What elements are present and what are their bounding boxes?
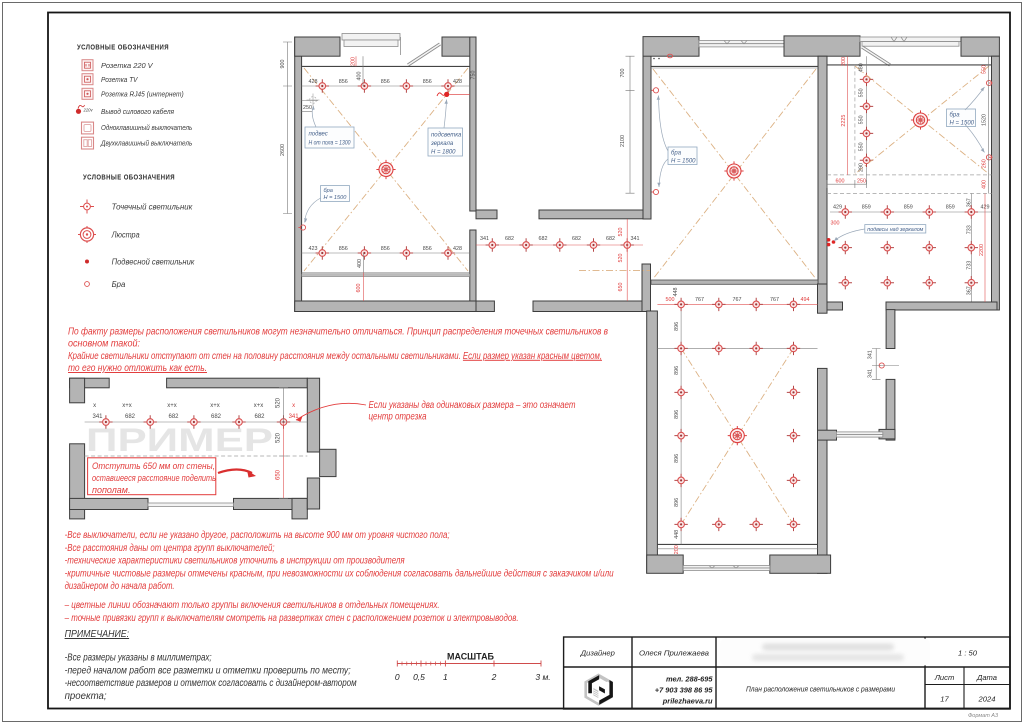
svg-text:856: 856	[339, 79, 348, 85]
svg-text:Подвесной светильник: Подвесной светильник	[112, 258, 195, 267]
svg-text:682: 682	[211, 414, 222, 420]
svg-text:896: 896	[674, 454, 680, 463]
svg-text:682: 682	[539, 236, 548, 242]
svg-text:650: 650	[276, 469, 282, 480]
svg-text:подвес: подвес	[309, 132, 328, 138]
svg-text:0: 0	[395, 672, 400, 682]
svg-text:Дата: Дата	[976, 673, 997, 682]
svg-text:дизайнером до начала работ.: дизайнером до начала работ.	[65, 581, 175, 592]
svg-text:3 м.: 3 м.	[535, 672, 550, 682]
svg-text:х+х: х+х	[167, 403, 177, 409]
svg-text:341: 341	[868, 369, 874, 378]
svg-text:367: 367	[967, 198, 973, 207]
svg-text:260: 260	[982, 159, 988, 168]
svg-text:859: 859	[904, 205, 913, 211]
svg-text:Если указаны два одинаковых ра: Если указаны два одинаковых размера – эт…	[369, 400, 576, 411]
svg-text:520: 520	[276, 397, 282, 408]
svg-text:Отступить 650 мм от стены,: Отступить 650 мм от стены,	[92, 461, 215, 471]
svg-text:733: 733	[967, 261, 973, 270]
svg-text:2200: 2200	[979, 244, 985, 256]
svg-text:429: 429	[833, 205, 842, 211]
svg-text:проекта;: проекта;	[65, 691, 107, 702]
svg-text:448: 448	[674, 530, 680, 539]
svg-text:Лист: Лист	[934, 673, 955, 682]
svg-text:682: 682	[125, 414, 136, 420]
svg-text:– точные привязки групп к выкл: – точные привязки групп к выключателям с…	[64, 613, 519, 624]
svg-text:Н = 1500: Н = 1500	[671, 159, 696, 165]
svg-text:Н = 1500: Н = 1500	[324, 195, 348, 201]
svg-text:290: 290	[859, 163, 865, 172]
svg-text:х: х	[292, 403, 295, 409]
svg-text:Розетка TV: Розетка TV	[101, 75, 139, 84]
svg-text:-технические характеристики св: -технические характеристики светильников…	[65, 556, 406, 567]
svg-text:2024: 2024	[978, 695, 996, 704]
svg-text:План расположения светильников: План расположения светильников с размера…	[746, 687, 895, 694]
svg-text:ПРИМЕР: ПРИМЕР	[86, 422, 273, 458]
svg-text:подвесы над зеркалом: подвесы над зеркалом	[867, 227, 923, 233]
svg-text:1: 1	[443, 672, 448, 682]
svg-text:856: 856	[381, 246, 390, 252]
svg-text:428: 428	[309, 79, 318, 85]
svg-text:-перед началом работ все разме: -перед началом работ все разметки и отме…	[65, 665, 351, 676]
svg-text:500: 500	[666, 297, 675, 303]
svg-text:-несоответствие размеров и отм: -несоответствие размеров и отметок согла…	[65, 678, 357, 689]
svg-text:896: 896	[674, 498, 680, 507]
svg-text:-Все расстояния даны от центра: -Все расстояния даны от центра групп вык…	[65, 543, 275, 554]
svg-text:220v: 220v	[83, 108, 94, 113]
svg-text:Розетка 220 V: Розетка 220 V	[101, 61, 154, 70]
svg-text:х+х: х+х	[210, 403, 220, 409]
svg-text:300: 300	[831, 221, 840, 227]
svg-text:859: 859	[862, 205, 871, 211]
svg-text:250: 250	[857, 178, 866, 184]
svg-text:900: 900	[280, 60, 286, 69]
svg-text:х+х: х+х	[122, 403, 132, 409]
svg-text:896: 896	[674, 410, 680, 419]
svg-text:856: 856	[381, 79, 390, 85]
svg-text:тел. 288-695: тел. 288-695	[666, 675, 713, 684]
svg-text:600: 600	[836, 178, 845, 184]
svg-text:896: 896	[674, 366, 680, 375]
svg-text:prilezhaeva.ru: prilezhaeva.ru	[662, 697, 713, 706]
svg-text:Розетка RJ45 (интернет): Розетка RJ45 (интернет)	[101, 89, 184, 98]
svg-text:1520: 1520	[982, 114, 988, 126]
svg-text:Люстра: Люстра	[111, 231, 141, 240]
svg-text:341: 341	[480, 236, 489, 242]
svg-text:767: 767	[733, 297, 742, 303]
svg-text:400: 400	[357, 72, 363, 81]
svg-text:Вывод силового кабеля: Вывод силового кабеля	[101, 107, 174, 116]
svg-text:200: 200	[841, 57, 847, 66]
svg-text:то его нужно отложить как есть: то его нужно отложить как есть.	[68, 363, 207, 374]
svg-text:2: 2	[491, 672, 497, 682]
svg-text:УСЛОВНЫЕ ОБОЗНАЧЕНИЯ: УСЛОВНЫЕ ОБОЗНАЧЕНИЯ	[83, 173, 175, 182]
svg-text:520: 520	[276, 432, 282, 443]
svg-text:341: 341	[631, 236, 640, 242]
svg-text:Дизайнер: Дизайнер	[580, 649, 615, 658]
svg-text:550: 550	[982, 65, 988, 74]
svg-text:зеркала: зеркала	[430, 141, 454, 147]
svg-text:367: 367	[967, 286, 973, 295]
svg-text:480: 480	[859, 63, 865, 72]
svg-text:2100: 2100	[620, 135, 626, 147]
svg-text:Н от пола = 1300: Н от пола = 1300	[309, 141, 352, 147]
svg-text:341: 341	[92, 414, 103, 420]
svg-text:494: 494	[801, 297, 810, 303]
svg-text:423: 423	[309, 246, 318, 252]
svg-text:682: 682	[168, 414, 179, 420]
svg-text:550: 550	[859, 88, 865, 97]
svg-text:700: 700	[620, 69, 626, 78]
svg-text:Формат А3: Формат А3	[968, 713, 999, 719]
svg-text:2225: 2225	[841, 115, 847, 127]
svg-text:856: 856	[423, 246, 432, 252]
svg-text:856: 856	[339, 246, 348, 252]
svg-text:400: 400	[357, 259, 363, 268]
svg-text:х: х	[93, 403, 96, 409]
svg-text:-Все выключатели, если не указ: -Все выключатели, если не указано другое…	[65, 530, 450, 541]
svg-text:Н = 1800: Н = 1800	[431, 150, 456, 156]
svg-text:600: 600	[356, 284, 362, 293]
svg-text:767: 767	[770, 297, 779, 303]
svg-text:650: 650	[618, 283, 624, 292]
svg-text:бра: бра	[950, 113, 961, 119]
svg-text:Двухклавишный выключатель: Двухклавишный выключатель	[100, 138, 192, 147]
svg-text:– цветные линии обозначают тол: – цветные линии обозначают только группы…	[64, 600, 440, 611]
svg-text:520: 520	[618, 228, 624, 237]
svg-text:центр отрезка: центр отрезка	[369, 412, 427, 423]
svg-text:682: 682	[254, 414, 265, 420]
svg-text:оставшееся расстояние поделить: оставшееся расстояние поделить	[92, 473, 216, 483]
svg-text:+7 903 398 86 95: +7 903 398 86 95	[655, 686, 714, 695]
svg-text:бра: бра	[324, 188, 333, 194]
svg-text:341: 341	[868, 350, 874, 359]
svg-text:896: 896	[674, 322, 680, 331]
svg-text:520: 520	[618, 254, 624, 263]
svg-text:200: 200	[674, 545, 680, 554]
svg-text:Точечный светильник: Точечный светильник	[112, 203, 193, 212]
svg-text:856: 856	[423, 79, 432, 85]
svg-text:Одноклавишный выключатель: Одноклавишный выключатель	[101, 123, 192, 132]
svg-text:-критичные чистовые размеры от: -критичные чистовые размеры отмечены кра…	[65, 568, 614, 579]
svg-text:бра: бра	[671, 151, 682, 157]
svg-text:Бра: Бра	[112, 280, 126, 289]
svg-text:17: 17	[940, 695, 949, 704]
svg-text:428: 428	[453, 79, 462, 85]
svg-text:550: 550	[859, 115, 865, 124]
svg-text:Крайние светильники отступают: Крайние светильники отступают от стен на…	[68, 351, 602, 362]
svg-text:400: 400	[982, 180, 988, 189]
svg-text:682: 682	[572, 236, 581, 242]
svg-text:подсветка: подсветка	[431, 133, 462, 139]
svg-text:750: 750	[471, 71, 477, 80]
svg-text:ПРИМЕЧАНИЕ:: ПРИМЕЧАНИЕ:	[65, 629, 130, 640]
svg-text:По факту размеры расположения: По факту размеры расположения светильник…	[68, 326, 608, 337]
svg-text:550: 550	[859, 142, 865, 151]
svg-text:основном такой:: основном такой:	[68, 339, 140, 350]
svg-text:-Все размеры указаны в миллиме: -Все размеры указаны в миллиметрах;	[65, 653, 212, 664]
svg-text:1 : 50: 1 : 50	[958, 649, 978, 658]
svg-text:682: 682	[505, 236, 514, 242]
svg-text:пополам.: пополам.	[92, 485, 130, 495]
svg-text:200: 200	[351, 57, 357, 66]
svg-text:859: 859	[946, 205, 955, 211]
svg-text:733: 733	[967, 225, 973, 234]
svg-text:Олеся Прилежаева: Олеся Прилежаева	[639, 649, 709, 658]
svg-text:250: 250	[303, 105, 312, 111]
svg-text:УСЛОВНЫЕ ОБОЗНАЧЕНИЯ: УСЛОВНЫЕ ОБОЗНАЧЕНИЯ	[77, 43, 169, 52]
svg-text:МАСШТАБ: МАСШТАБ	[447, 652, 495, 662]
svg-text:Н = 1500: Н = 1500	[950, 121, 975, 127]
svg-text:448: 448	[673, 288, 679, 297]
svg-text:428: 428	[453, 246, 462, 252]
svg-text:х+х: х+х	[254, 403, 264, 409]
svg-text:2600: 2600	[280, 144, 286, 156]
svg-text:0,5: 0,5	[413, 672, 425, 682]
svg-text:767: 767	[695, 297, 704, 303]
svg-text:682: 682	[606, 236, 615, 242]
